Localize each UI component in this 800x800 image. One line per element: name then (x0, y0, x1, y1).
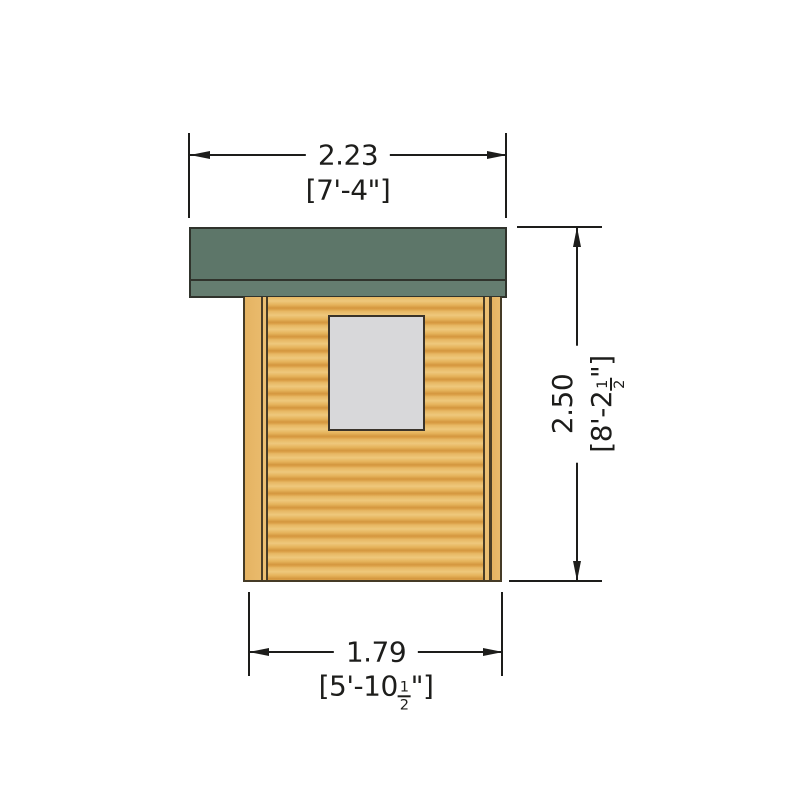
fraction: 12 (595, 378, 628, 391)
dim-right-metric-label: 2.50 (544, 355, 583, 452)
imperial-suffix: "] (411, 669, 434, 702)
corner-post-left (245, 297, 268, 580)
shed-wall (243, 297, 502, 582)
fraction-denominator: 2 (612, 378, 628, 391)
dim-top-arrow-right-icon (487, 151, 507, 159)
corner-post-right (483, 297, 500, 580)
dim-bottom-arrow-left-icon (249, 648, 269, 656)
dim-top-ext-line-right (505, 133, 507, 218)
shed-roof-fascia (189, 281, 507, 298)
shed-window (328, 315, 425, 431)
shed-roof (189, 227, 507, 281)
fraction-numerator: 1 (595, 378, 613, 391)
fraction-numerator: 1 (398, 679, 411, 697)
dim-right-ext-line-top (517, 226, 602, 228)
elevation-diagram: 2.23 [7'-4"] 2.50 [8'-212"] 1.79 [5'-101… (0, 0, 800, 800)
dim-top-arrow-left-icon (190, 151, 210, 159)
dim-right-imperial-label: [8'-212"] (583, 355, 628, 452)
dim-bottom-metric-label: 1.79 (334, 637, 418, 670)
imperial-prefix: [8'-2 (585, 391, 618, 453)
imperial-prefix: [5'-10 (319, 669, 398, 702)
dim-right-height-label: 2.50 [8'-212"] (540, 345, 632, 462)
dim-top-metric-label: 2.23 (306, 140, 390, 173)
dim-right-arrow-up-icon (573, 227, 581, 247)
dim-top-ext-line-left (188, 133, 190, 218)
dim-bottom-imperial-label: [5'-1012"] (307, 670, 446, 713)
dim-right-arrow-down-icon (573, 561, 581, 581)
dim-bottom-arrow-right-icon (483, 648, 503, 656)
imperial-suffix: "] (585, 355, 618, 378)
dim-bottom-ext-line-left (248, 592, 250, 676)
fraction-denominator: 2 (398, 697, 411, 713)
fraction: 12 (398, 679, 411, 712)
dim-bottom-ext-line-right (501, 592, 503, 676)
dim-top-imperial-label: [7'-4"] (294, 175, 403, 208)
dim-right-ext-line-bottom (509, 580, 602, 582)
